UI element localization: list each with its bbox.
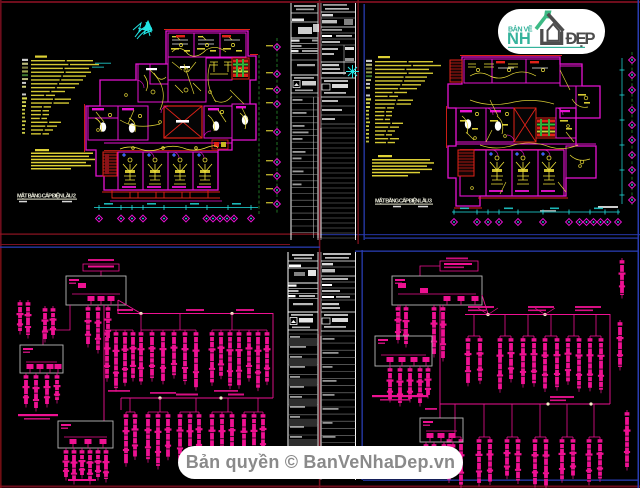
- svg-text:ĐẸP: ĐẸP: [566, 30, 596, 48]
- svg-text:NH: NH: [507, 30, 531, 48]
- svg-text:MẶT BẰNG CẤP ĐIỆN LẦU 3: MẶT BẰNG CẤP ĐIỆN LẦU 3: [375, 197, 432, 205]
- svg-text:MẶT BẰNG CẤP ĐIỆN LẦU 2: MẶT BẰNG CẤP ĐIỆN LẦU 2: [17, 192, 76, 200]
